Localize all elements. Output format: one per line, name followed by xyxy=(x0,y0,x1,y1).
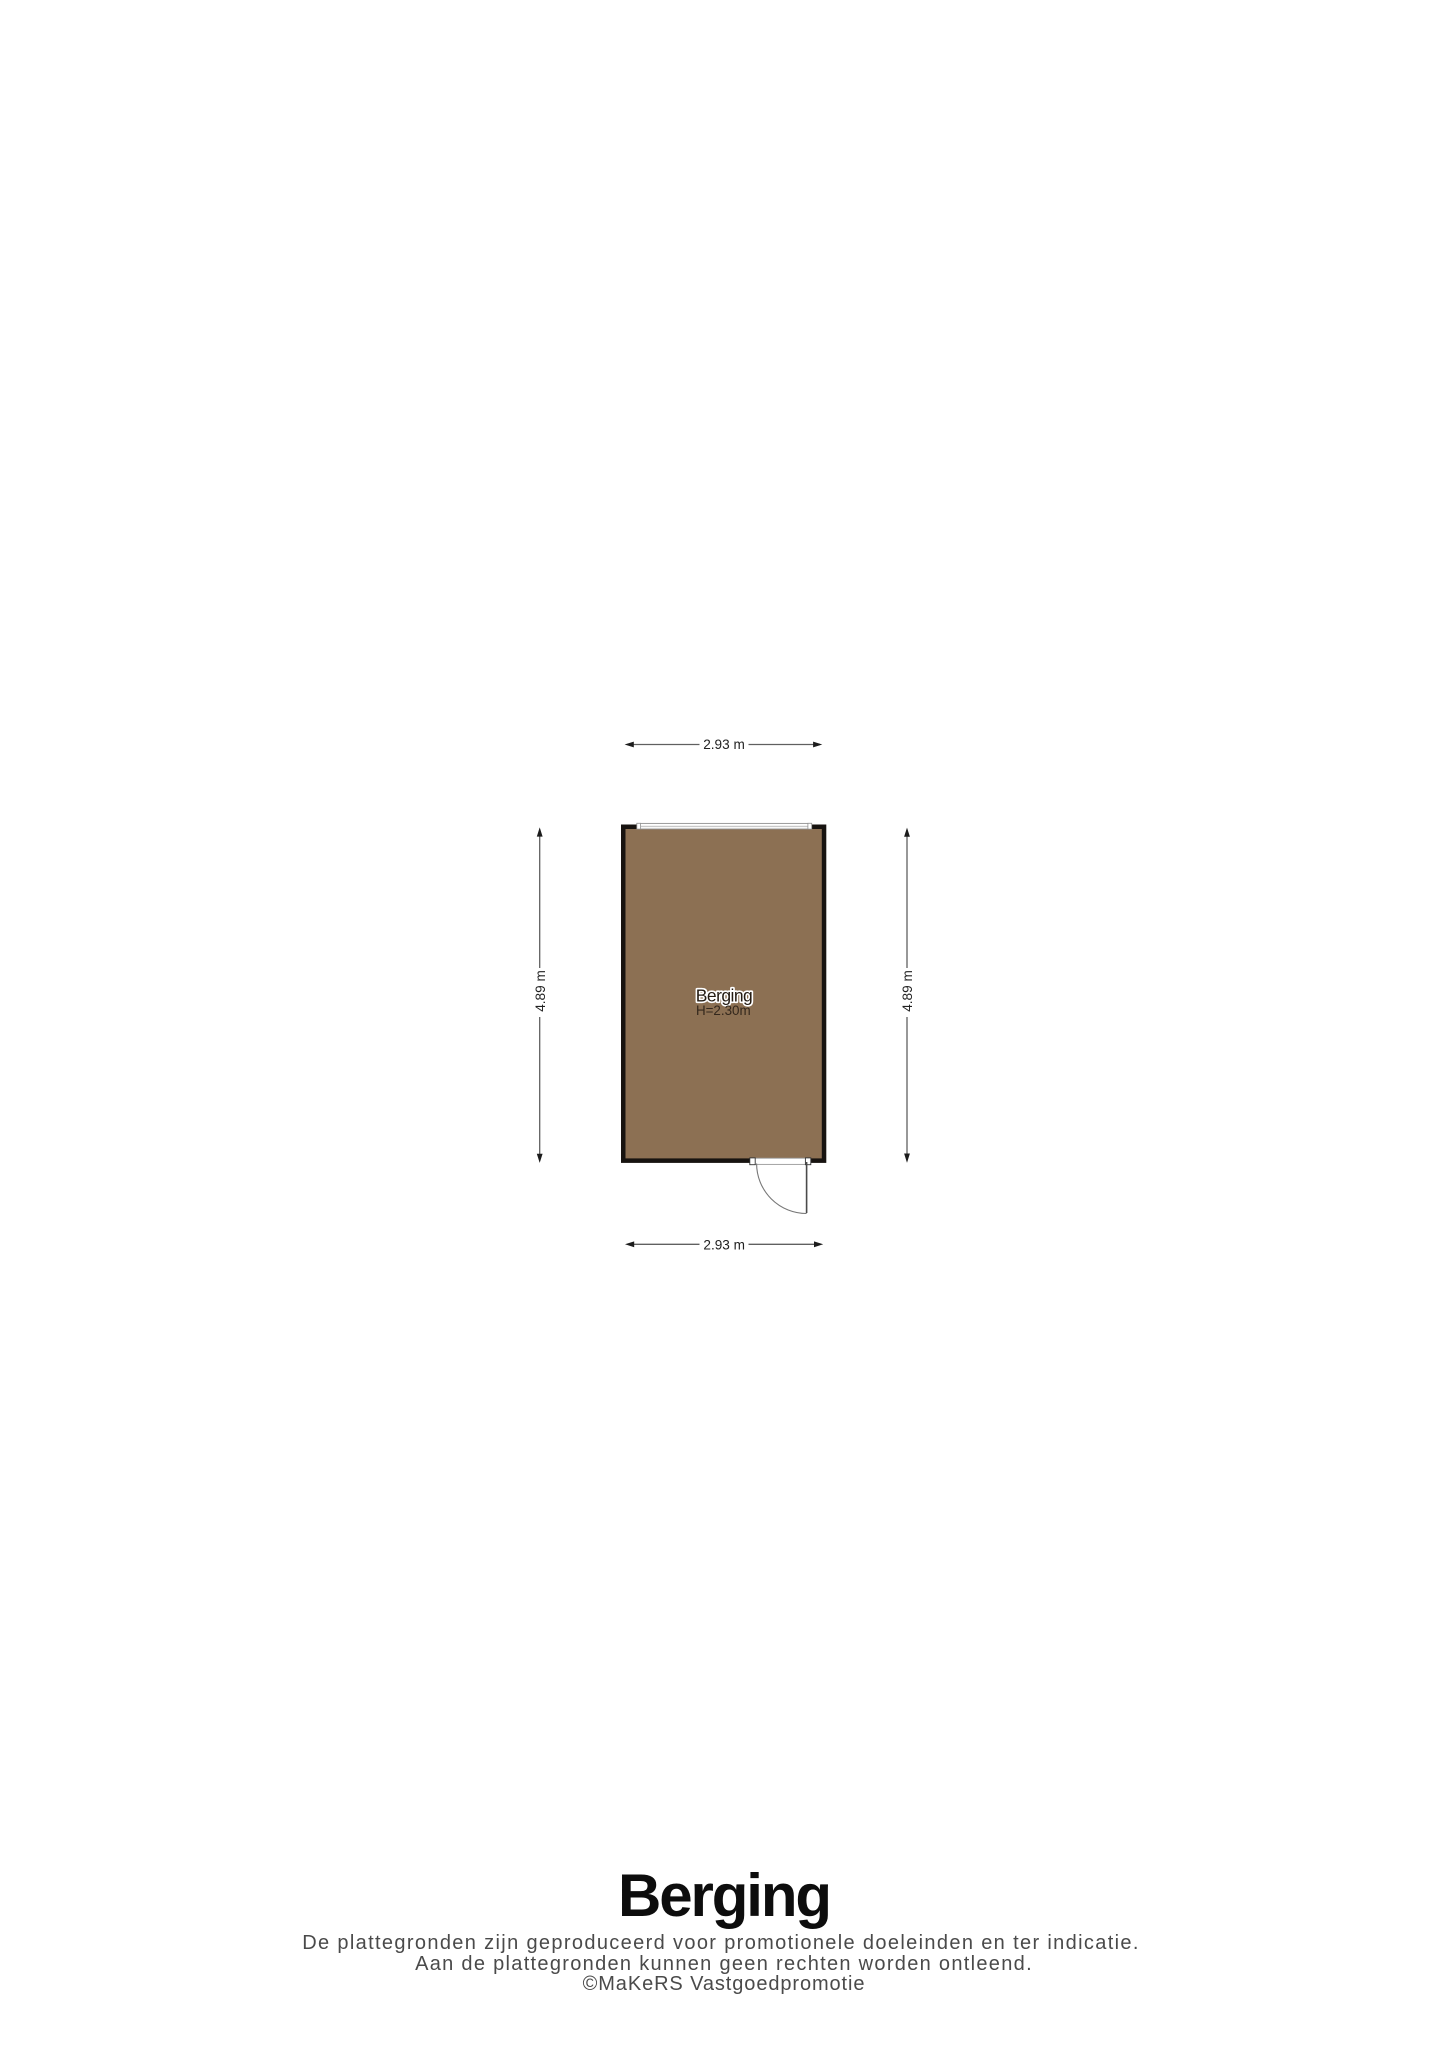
svg-text:4.89 m: 4.89 m xyxy=(900,970,915,1012)
svg-text:4.89 m: 4.89 m xyxy=(533,970,548,1012)
svg-text:2.93 m: 2.93 m xyxy=(703,737,745,752)
svg-text:H=2.30m: H=2.30m xyxy=(696,1003,751,1018)
svg-text:2.93 m: 2.93 m xyxy=(703,1237,745,1252)
